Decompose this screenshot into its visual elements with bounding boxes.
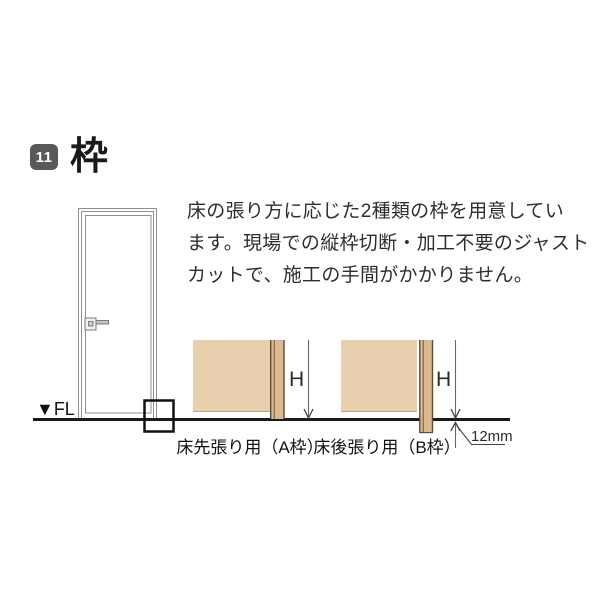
section-b-height-label: H: [436, 368, 451, 391]
section-a-caption: 床先張り用（A枠）: [176, 438, 323, 457]
section-b-drawing: H 12mm: [341, 340, 513, 448]
frame-diagram: ▼FL H: [0, 190, 600, 470]
page-title: 枠: [70, 138, 108, 176]
section-header: 11 枠: [30, 138, 108, 176]
door-leaf: [86, 216, 152, 414]
section-a-height-label: H: [289, 368, 304, 391]
section-number-badge: 11: [30, 144, 58, 170]
section-b-wall: [341, 340, 417, 412]
catalog-page: 11 枠 床の張り方に応じた2種類の枠を用意してい ます。現場での縦枠切断・加工…: [0, 0, 600, 600]
door-elevation-drawing: [78, 208, 157, 419]
detail-highlight-square: [145, 401, 174, 432]
section-a-wall: [193, 340, 270, 412]
section-a-drawing: H: [193, 340, 313, 419]
door-handle-icon: [85, 318, 109, 330]
section-b-caption: 床後張り用（B枠）: [313, 438, 460, 457]
offset-dimension-label: 12mm: [471, 428, 513, 445]
section-b-frame-member: [420, 340, 434, 433]
section-a-frame-member: [271, 340, 285, 419]
floor-level-label: ▼FL: [36, 399, 75, 419]
